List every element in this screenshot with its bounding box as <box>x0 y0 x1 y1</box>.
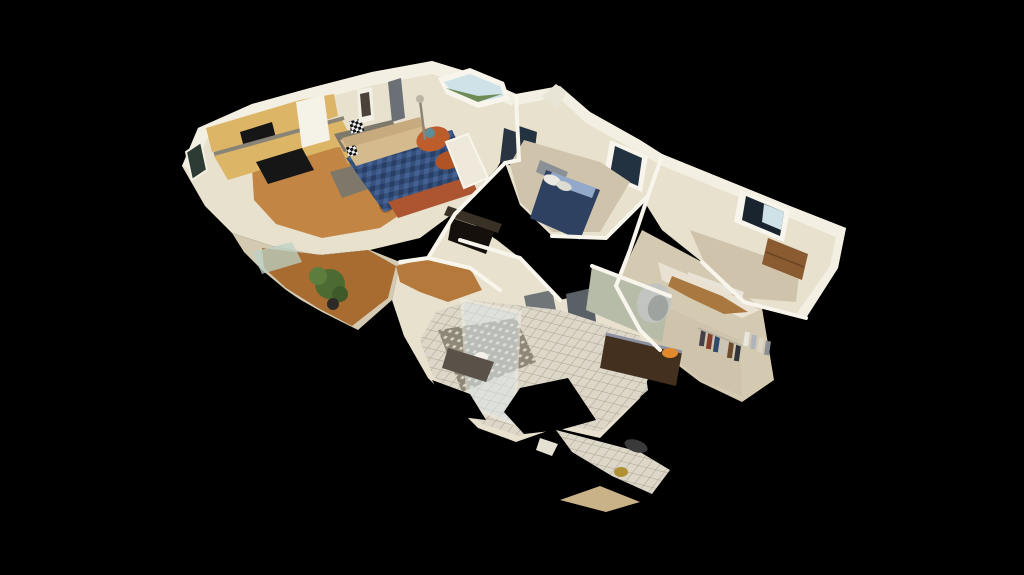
dollhouse-model <box>0 0 1024 575</box>
3d-viewport[interactable] <box>0 0 1024 575</box>
fragment-gold-object <box>614 467 628 477</box>
fragment-tile-gridlines <box>556 430 670 494</box>
pantry-door <box>296 95 330 148</box>
fragment-floor-sliver <box>560 486 640 512</box>
scan-fragments-bottom <box>536 430 670 512</box>
teal-pillow <box>425 128 435 138</box>
houseplant-foliage-2 <box>309 267 327 285</box>
fragment-white-sliver <box>536 438 558 456</box>
room-entry <box>252 242 396 334</box>
houseplant-pot <box>327 298 339 310</box>
orange-bowl <box>662 348 678 358</box>
floor-lamp-head <box>416 95 424 103</box>
